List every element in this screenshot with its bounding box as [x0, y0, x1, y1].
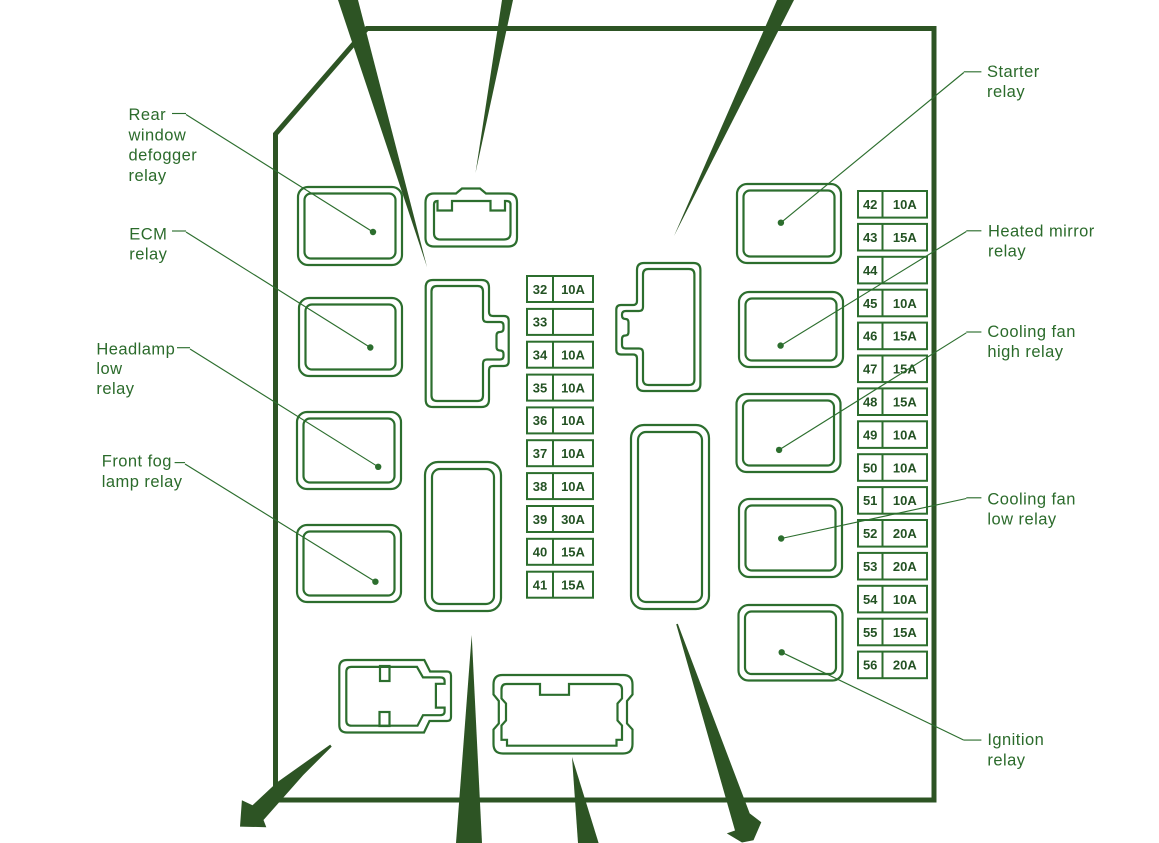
svg-text:41: 41: [533, 578, 547, 593]
svg-text:49: 49: [863, 427, 877, 442]
svg-text:15A: 15A: [561, 545, 585, 560]
svg-text:Cooling fan: Cooling fan: [987, 490, 1075, 508]
svg-text:20A: 20A: [893, 526, 917, 541]
svg-text:15A: 15A: [561, 578, 585, 593]
svg-text:10A: 10A: [893, 493, 917, 508]
svg-text:36: 36: [533, 413, 547, 428]
svg-text:Ignition: Ignition: [987, 731, 1044, 749]
svg-text:high relay: high relay: [987, 343, 1063, 361]
svg-text:10A: 10A: [561, 446, 585, 461]
svg-text:10A: 10A: [893, 592, 917, 607]
svg-text:32: 32: [533, 282, 547, 297]
svg-text:53: 53: [863, 559, 877, 574]
svg-text:10A: 10A: [893, 197, 917, 212]
svg-text:43: 43: [863, 230, 877, 245]
svg-text:relay: relay: [129, 245, 167, 263]
svg-text:10A: 10A: [561, 380, 585, 395]
svg-text:relay: relay: [96, 380, 134, 398]
svg-text:10A: 10A: [893, 460, 917, 475]
svg-text:low: low: [96, 360, 122, 378]
svg-text:lamp relay: lamp relay: [102, 473, 183, 491]
svg-text:10A: 10A: [561, 413, 585, 428]
svg-text:ECM: ECM: [129, 226, 167, 244]
svg-text:low relay: low relay: [987, 511, 1056, 529]
svg-text:Cooling fan: Cooling fan: [987, 323, 1075, 341]
svg-text:15A: 15A: [893, 625, 917, 640]
svg-text:Headlamp: Headlamp: [96, 340, 175, 358]
svg-text:15A: 15A: [893, 395, 917, 410]
svg-text:15A: 15A: [893, 362, 917, 377]
svg-text:Heated mirror: Heated mirror: [988, 222, 1095, 240]
svg-text:30A: 30A: [561, 512, 585, 527]
svg-text:54: 54: [863, 592, 878, 607]
svg-text:51: 51: [863, 493, 877, 508]
svg-text:10A: 10A: [561, 479, 585, 494]
svg-text:relay: relay: [987, 83, 1025, 101]
svg-text:40: 40: [533, 545, 547, 560]
svg-text:42: 42: [863, 197, 877, 212]
svg-text:window: window: [128, 126, 187, 144]
svg-text:relay: relay: [987, 751, 1025, 769]
svg-text:20A: 20A: [893, 658, 917, 673]
svg-text:47: 47: [863, 362, 877, 377]
svg-text:15A: 15A: [893, 329, 917, 344]
svg-text:50: 50: [863, 460, 877, 475]
svg-text:38: 38: [533, 479, 547, 494]
svg-text:Front fog: Front fog: [102, 453, 172, 471]
svg-text:46: 46: [863, 329, 877, 344]
svg-text:35: 35: [533, 380, 547, 395]
svg-text:10A: 10A: [561, 282, 585, 297]
svg-text:45: 45: [863, 296, 877, 311]
svg-text:33: 33: [533, 315, 547, 330]
svg-text:15A: 15A: [893, 230, 917, 245]
svg-text:34: 34: [533, 348, 548, 363]
svg-text:55: 55: [863, 625, 877, 640]
svg-text:relay: relay: [988, 243, 1026, 261]
svg-text:37: 37: [533, 446, 547, 461]
svg-text:39: 39: [533, 512, 547, 527]
svg-text:Rear: Rear: [129, 106, 167, 124]
svg-text:relay: relay: [129, 167, 167, 185]
svg-text:10A: 10A: [893, 427, 917, 442]
svg-text:10A: 10A: [893, 296, 917, 311]
svg-text:Starter: Starter: [987, 63, 1040, 81]
svg-text:44: 44: [863, 263, 878, 278]
svg-text:20A: 20A: [893, 559, 917, 574]
svg-text:10A: 10A: [561, 348, 585, 363]
svg-text:52: 52: [863, 526, 877, 541]
svg-text:defogger: defogger: [129, 147, 198, 165]
svg-text:56: 56: [863, 658, 877, 673]
